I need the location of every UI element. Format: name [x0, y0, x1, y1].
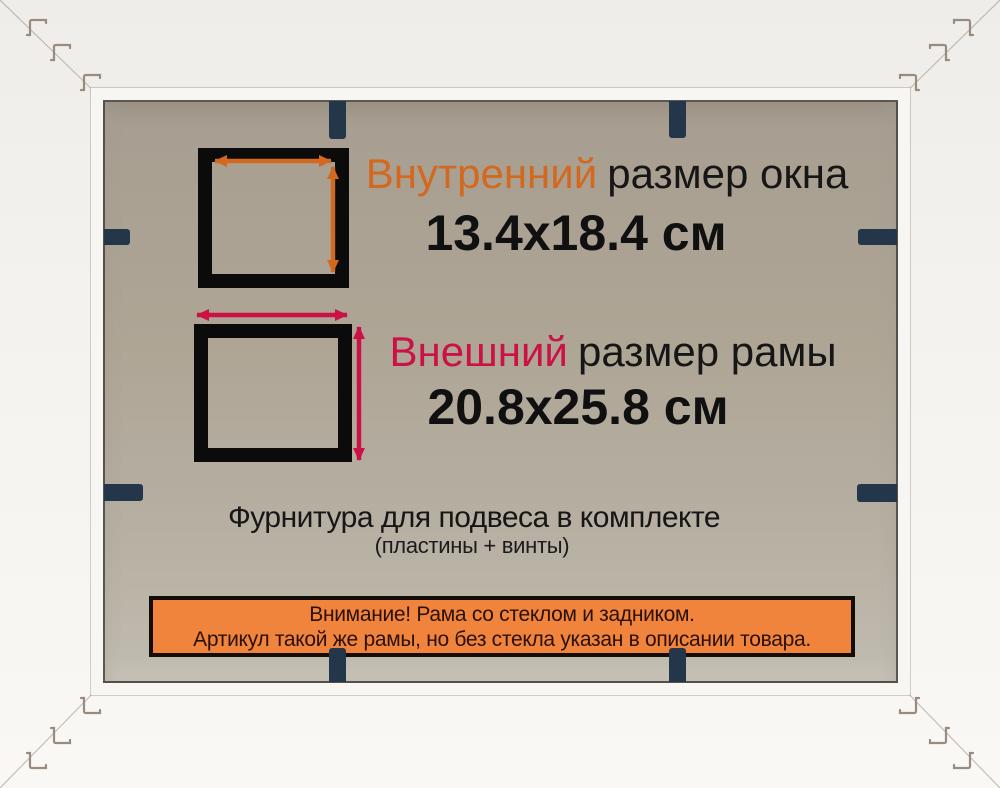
notice-banner: Внимание! Рама со стеклом и задником. Ар… [149, 596, 855, 657]
hardware-note-subtitle: (пластины + винты) [375, 533, 570, 559]
backing-tab-icon [104, 484, 143, 501]
notice-banner-line1: Внимание! Рама со стеклом и задником. [309, 602, 694, 627]
hardware-note-title: Фурнитура для подвеса в комплекте [228, 501, 720, 535]
backing-tab-icon [858, 229, 897, 245]
outer-size-label-rest: размер рамы [578, 328, 837, 375]
outer-size-label: Внешнийразмер рамы [389, 330, 836, 374]
backing-tab-icon [669, 648, 686, 682]
backing-board: Внутреннийразмер окна 13.4x18.4 см Внешн… [103, 100, 898, 683]
outer-frame-square [194, 324, 352, 462]
backing-tab-icon [104, 229, 130, 245]
outer-size-value: 20.8x25.8 см [427, 381, 728, 433]
notice-banner-line2: Артикул такой же рамы, но без стекла ука… [193, 627, 811, 652]
inner-size-value: 13.4x18.4 см [425, 207, 726, 259]
backing-tab-icon [857, 484, 897, 502]
inner-size-label-highlight: Внутренний [366, 150, 597, 197]
backing-tab-icon [329, 648, 346, 682]
inner-size-label: Внутреннийразмер окна [366, 152, 849, 196]
backing-tab-icon [329, 101, 346, 139]
backing-tab-icon [669, 101, 686, 138]
frame-product-photo: { "product_card": { "inner_size": { "lab… [0, 0, 1000, 788]
inner-size-label-rest: размер окна [607, 150, 848, 197]
inner-window-square [198, 148, 349, 288]
outer-size-label-highlight: Внешний [389, 328, 567, 375]
